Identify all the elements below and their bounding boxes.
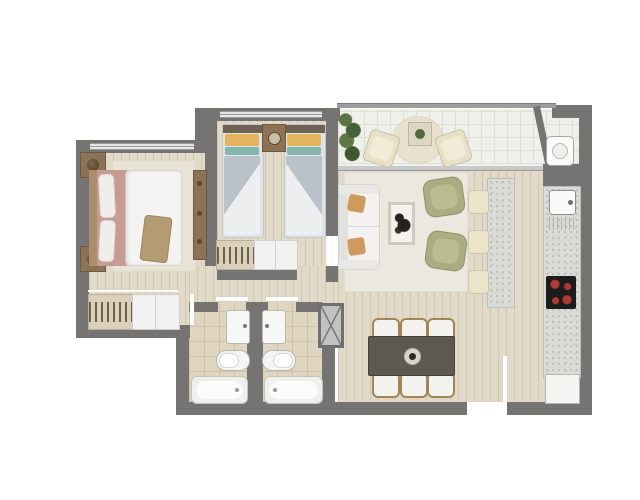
laundry-unit xyxy=(546,136,574,166)
twin-blanket xyxy=(224,156,260,235)
shared-nightstand xyxy=(262,124,286,152)
armchair-top xyxy=(422,175,467,218)
bathroom-left-door-leaf xyxy=(216,297,248,301)
master-closet-doors xyxy=(132,294,180,330)
second-bedroom-door-leaf xyxy=(327,236,331,266)
armchair-cushion xyxy=(429,183,458,210)
twin-pillow-teal xyxy=(287,147,321,155)
bathroom-right-door-leaf xyxy=(266,297,298,301)
master-closet-hangers xyxy=(88,294,134,330)
dining-left-wall xyxy=(322,348,335,402)
balcony-side-table xyxy=(408,122,432,146)
centerpiece xyxy=(404,348,421,365)
master-window xyxy=(90,143,194,150)
sofa-cushion-split xyxy=(348,226,379,227)
balcony-railing xyxy=(337,103,556,108)
master-bed-throw xyxy=(139,214,172,263)
kitchen-island xyxy=(487,178,515,308)
table-plant-icon xyxy=(415,129,425,139)
top-right-wall xyxy=(552,105,592,118)
cooktop xyxy=(546,276,576,309)
living-left-wall-upper xyxy=(326,121,338,236)
dresser-decor xyxy=(197,211,202,216)
sofa-pillow-top xyxy=(347,194,367,214)
toilet-bowl xyxy=(273,353,293,368)
dresser-decor xyxy=(197,239,202,244)
armchair-cushion xyxy=(431,237,460,264)
washbasin-left xyxy=(226,310,250,344)
faucet-icon xyxy=(265,324,269,328)
twin-headboard xyxy=(285,125,325,133)
master-bed-headboard xyxy=(89,170,97,266)
floor-plan xyxy=(0,0,640,500)
kitchen-sink xyxy=(549,190,576,215)
nightstand-decor xyxy=(268,132,281,145)
laundry-drum-icon xyxy=(552,143,568,159)
master-bed-pillow-top xyxy=(98,174,116,219)
sofa-back xyxy=(339,185,348,269)
dresser-decor xyxy=(197,181,202,186)
tall-dresser xyxy=(193,170,207,260)
wardrobe-hangers xyxy=(216,240,256,270)
faucet-icon xyxy=(568,200,573,205)
twin-pillow-yellow xyxy=(287,134,321,146)
entry-door-leaf xyxy=(503,356,507,402)
second-bedroom-window xyxy=(220,111,322,118)
refrigerator xyxy=(545,374,580,404)
washbasin-right xyxy=(262,310,286,344)
twin-headboard xyxy=(223,125,263,133)
tub-drain-icon xyxy=(235,388,239,392)
kitchen-top-wall xyxy=(543,164,579,186)
balcony-sliding-door xyxy=(338,164,543,171)
armchair-bottom xyxy=(424,229,469,272)
bar-stool-2 xyxy=(468,230,489,254)
sofa-pillow-bottom xyxy=(347,237,366,256)
bar-stool-3 xyxy=(468,270,489,294)
dining-table xyxy=(368,336,455,376)
tub-drain-icon xyxy=(273,388,277,392)
bathtub-right xyxy=(264,376,323,404)
chair-seat xyxy=(368,135,394,161)
toilet-left xyxy=(216,350,250,371)
coffee-table xyxy=(388,202,415,245)
sofa-arm-top xyxy=(339,185,379,194)
twin-pillow-teal xyxy=(225,147,259,155)
balcony-planter xyxy=(339,112,361,164)
bathtub-left xyxy=(191,376,248,404)
twin-pillow-yellow xyxy=(225,134,259,146)
wardrobe-doors xyxy=(254,240,298,270)
sink-drainboard xyxy=(549,217,574,230)
centerpiece-inner xyxy=(409,353,416,360)
sofa-arm-bottom xyxy=(339,260,379,269)
bar-stool-1 xyxy=(468,190,489,214)
sofa xyxy=(338,184,380,270)
twin-blanket xyxy=(286,156,322,235)
shaft-x-icon xyxy=(321,306,341,345)
twin-bed-left xyxy=(222,124,264,238)
master-door-leaf xyxy=(190,294,194,325)
master-bed-pillow-bottom xyxy=(98,220,116,263)
toilet-right xyxy=(262,350,296,371)
wardrobe-door-split xyxy=(275,241,276,269)
closet-rail-line xyxy=(88,290,178,292)
twin-bed-right xyxy=(284,124,326,238)
service-shaft xyxy=(318,303,344,348)
chair-seat xyxy=(440,135,466,161)
living-left-wall-lower xyxy=(326,266,338,282)
toilet-bowl xyxy=(219,353,239,368)
faucet-icon xyxy=(243,324,247,328)
closet-door-split xyxy=(155,295,156,329)
